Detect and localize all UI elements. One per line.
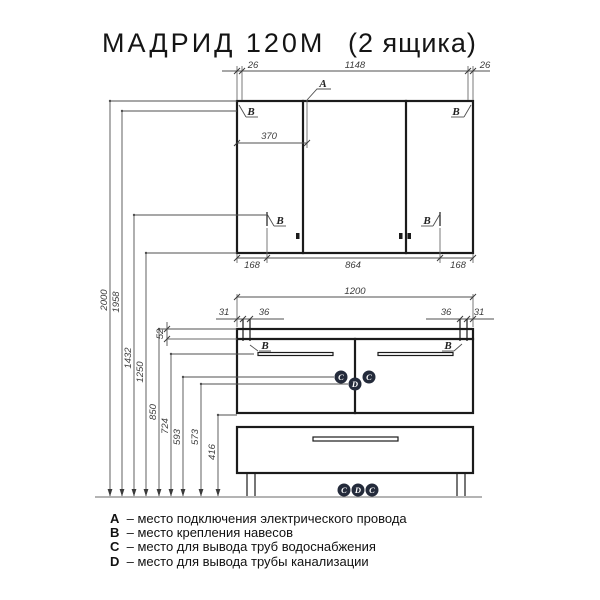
dim-label-26-left: 26 <box>247 60 259 71</box>
marker-b-hinge-left: B <box>267 212 286 227</box>
marker-b-hinge-right: B <box>421 212 440 227</box>
height-label-1432: 1432 <box>123 347 134 369</box>
svg-text:B: B <box>443 340 451 352</box>
dim-label-36-right: 36 <box>441 307 452 318</box>
dim-label-1200: 1200 <box>344 286 366 297</box>
marker-a-label: A <box>318 78 326 90</box>
upper-cabinet-outline <box>237 101 473 253</box>
legend-key-d: D <box>110 555 123 569</box>
height-dimension-chain: 2000 1958 1432 1250 850 724 593 <box>99 100 348 497</box>
dim-label-864: 864 <box>345 260 361 271</box>
technical-drawing: 26 1148 26 370 A B B <box>0 0 600 600</box>
lower-hinge-dimensions: 31 36 36 31 <box>216 307 494 341</box>
door-handle-icon <box>296 233 300 239</box>
dim-label-36-left: 36 <box>259 307 270 318</box>
dim-label-26-right: 26 <box>479 60 491 71</box>
dim-label-370: 370 <box>261 131 278 142</box>
svg-text:D: D <box>354 485 361 495</box>
upper-door-dimension: 370 <box>234 100 310 148</box>
svg-text:B: B <box>451 106 459 118</box>
height-label-416: 416 <box>207 443 218 460</box>
legend-item-a: A – место подключения электрического про… <box>110 512 407 526</box>
legend-text-b: – место крепления навесов <box>127 525 293 540</box>
height-label-593: 593 <box>172 428 183 445</box>
legend-text-a: – место подключения электрического прово… <box>127 511 407 526</box>
countertop-thickness-dimension: 52 <box>155 322 237 346</box>
svg-text:B: B <box>275 215 283 227</box>
height-label-2000: 2000 <box>99 289 110 312</box>
upper-cabinet <box>237 101 473 253</box>
dim-label-168-right: 168 <box>450 260 467 271</box>
door-handle-left <box>258 353 333 356</box>
svg-text:C: C <box>341 485 347 495</box>
lower-width-dimension: 1200 <box>234 286 476 327</box>
height-label-850: 850 <box>148 403 159 420</box>
drawer-box-outline <box>237 427 473 473</box>
legend-key-b: B <box>110 526 123 540</box>
legend-item-c: C – место для вывода труб водоснабжения <box>110 540 407 554</box>
svg-text:B: B <box>260 340 268 352</box>
door-handle-icon <box>399 233 403 239</box>
marker-b-top-right: B <box>451 105 471 118</box>
dim-label-31-right: 31 <box>474 307 485 318</box>
legend-item-b: B – место крепления навесов <box>110 526 407 540</box>
svg-text:B: B <box>422 215 430 227</box>
height-label-724: 724 <box>160 418 171 434</box>
height-label-1250: 1250 <box>135 361 146 383</box>
door-handle-right <box>378 353 453 356</box>
legend-key-c: C <box>110 540 123 554</box>
legend-item-d: D – место для вывода трубы канализации <box>110 555 407 569</box>
upper-bottom-dimension: 168 864 168 <box>234 228 476 271</box>
svg-text:B: B <box>246 106 254 118</box>
legend-key-a: A <box>110 512 123 526</box>
svg-text:C: C <box>366 372 372 382</box>
svg-text:C: C <box>338 372 344 382</box>
height-label-1958: 1958 <box>111 291 122 313</box>
lower-cabinet <box>237 329 473 496</box>
height-label-573: 573 <box>190 428 201 445</box>
svg-text:D: D <box>351 379 358 389</box>
door-handle-icon <box>408 233 412 239</box>
marker-b-door-left: B <box>250 340 271 352</box>
pipe-markers-floor: C D C <box>338 484 379 497</box>
marker-b-top-left: B <box>239 105 258 118</box>
legend: A – место подключения электрического про… <box>110 512 407 569</box>
drawer-handle <box>313 437 398 441</box>
dim-label-52: 52 <box>155 328 166 339</box>
drawing-page: МАДРИД 120М (2 ящика) 26 1148 26 <box>0 0 600 600</box>
dim-label-168-left: 168 <box>244 260 261 271</box>
legend-text-c: – место для вывода труб водоснабжения <box>127 539 376 554</box>
dim-label-1148: 1148 <box>345 60 366 71</box>
marker-a-electric: A <box>307 78 331 100</box>
svg-text:C: C <box>369 485 375 495</box>
upper-top-dimension: 26 1148 26 <box>222 60 491 100</box>
dim-label-31-left: 31 <box>219 307 230 318</box>
marker-b-door-right: B <box>442 340 462 352</box>
legend-text-d: – место для вывода трубы канализации <box>127 554 369 569</box>
